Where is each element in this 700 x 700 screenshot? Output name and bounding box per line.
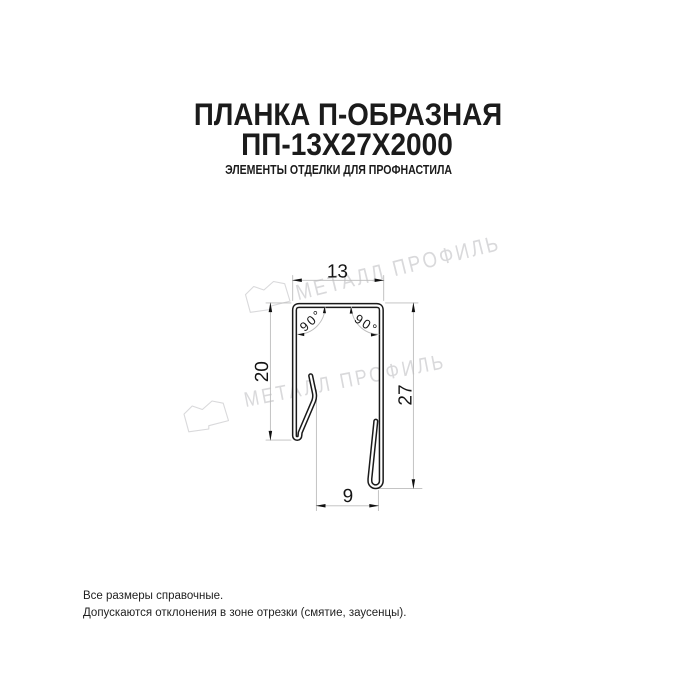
svg-text:МЕТАЛЛ ПРОФИЛЬ: МЕТАЛЛ ПРОФИЛЬ	[242, 350, 448, 412]
svg-text:20: 20	[252, 361, 273, 382]
svg-text:МЕТАЛЛ ПРОФИЛЬ: МЕТАЛЛ ПРОФИЛЬ	[293, 230, 503, 305]
svg-text:9: 9	[343, 486, 354, 507]
svg-text:27: 27	[396, 384, 417, 405]
svg-text:90°: 90°	[297, 306, 326, 334]
svg-text:13: 13	[327, 261, 348, 282]
svg-text:90°: 90°	[352, 311, 381, 337]
